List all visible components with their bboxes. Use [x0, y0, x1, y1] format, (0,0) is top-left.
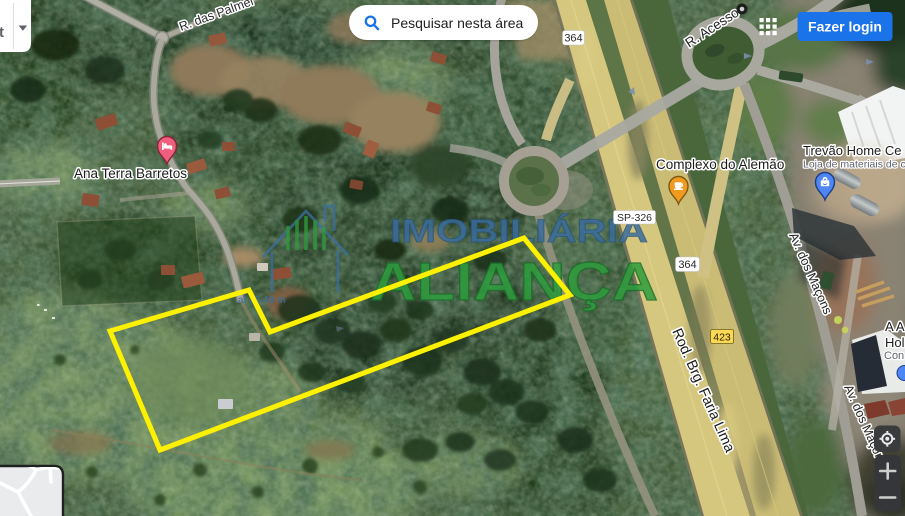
svg-text:Hol: Hol [885, 335, 905, 350]
svg-text:Ana Terra Barretos: Ana Terra Barretos [74, 166, 187, 181]
svg-text:IMOBILIÁRIA: IMOBILIÁRIA [390, 213, 648, 249]
svg-text:Con: Con [884, 350, 904, 362]
svg-text:Complexo do Alemão: Complexo do Alemão [656, 157, 784, 172]
svg-text:A A: A A [885, 319, 905, 334]
svg-text:SP-326: SP-326 [617, 212, 652, 224]
svg-text:Loja de materiais de c: Loja de materiais de c [803, 159, 905, 171]
svg-text:al 25.49 m: al 25.49 m [238, 295, 286, 306]
svg-text:364: 364 [678, 259, 696, 271]
svg-text:ALIANÇA: ALIANÇA [370, 252, 658, 312]
svg-text:Trevão Home Ce: Trevão Home Ce [803, 143, 902, 158]
svg-text:423: 423 [713, 331, 731, 343]
svg-text:t: t [0, 24, 4, 41]
svg-text:364: 364 [564, 33, 582, 45]
svg-text:Pesquisar nesta área: Pesquisar nesta área [391, 15, 524, 31]
svg-text:Fazer login: Fazer login [808, 19, 882, 35]
